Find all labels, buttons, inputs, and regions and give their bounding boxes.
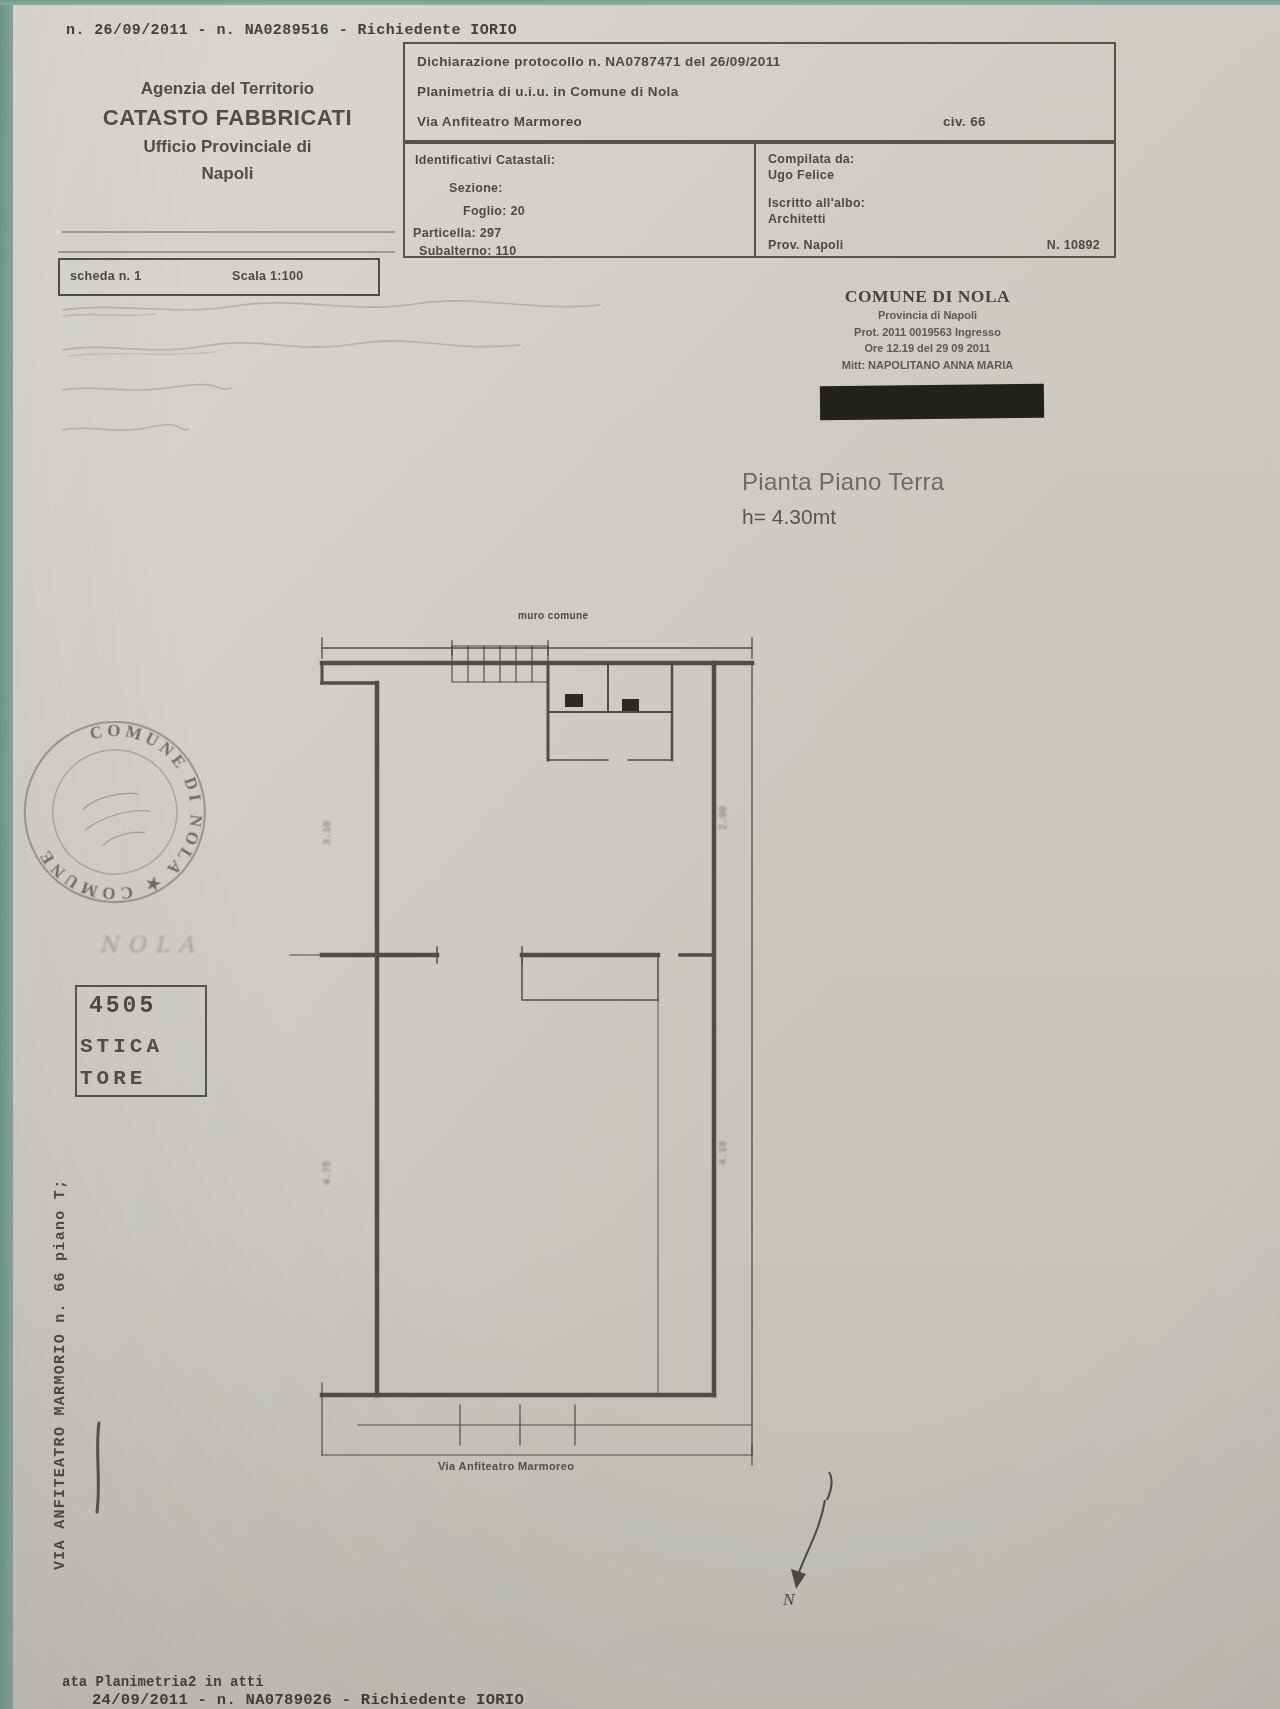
dim-left-bottom: 4.75 — [322, 1161, 333, 1185]
sheet-scale-bar: scheda n. 1 Scala 1:100 — [58, 258, 380, 296]
side-stamp-fragment1: STICA — [80, 1035, 163, 1058]
scale: Scala 1:100 — [232, 269, 303, 283]
faint-handwriting — [55, 292, 715, 452]
dim-right-top: 2.90 — [718, 806, 729, 830]
bottom-annotation-2: 24/09/2011 - n. NA0789026 - Richiedente … — [92, 1691, 524, 1709]
protocol-stamp-line5: Mitt: NAPOLITANO ANNA MARIA — [790, 357, 1065, 374]
compiler-box: Compilata da: Ugo Felice Iscritto all'al… — [754, 142, 1116, 258]
compiler-prov: Prov. Napoli — [768, 238, 844, 252]
plan-title: Pianta Piano Terra — [742, 468, 944, 496]
dim-left-top: 3.10 — [322, 821, 333, 845]
handwriting-marks: NOLA — [95, 918, 235, 978]
protocol-stamp-line2: Provincia di Napoli — [790, 307, 1065, 324]
agency-line1: Agenzia del Territorio — [60, 76, 395, 102]
scanner-edge-left — [0, 0, 13, 1709]
svg-text:COMUNE DI NOLA ★ COMUNE: COMUNE DI NOLA ★ COMUNE — [1, 697, 230, 927]
fixture-mark — [565, 694, 583, 707]
identifiers-title: Identificativi Catastali: — [415, 153, 555, 167]
side-stamp-number: 4505 — [89, 993, 156, 1019]
compiler-number: N. 10892 — [1047, 238, 1100, 252]
compiler-title: Compilata da: — [768, 152, 855, 166]
cadastral-identifiers-box: Identificativi Catastali: Sezione: Fogli… — [403, 142, 756, 258]
albo-value: Architetti — [768, 212, 826, 226]
redaction-bar — [820, 384, 1044, 420]
top-protocol-annotation: n. 26/09/2011 - n. NA0289516 - Richieden… — [66, 22, 517, 39]
bottom-annotation-1: ata Planimetria2 in atti — [62, 1674, 264, 1690]
round-stamp-text: COMUNE DI NOLA ★ COMUNE — [1, 697, 230, 927]
protocol-stamp-line4: Ore 12.19 del 29 09 2011 — [790, 340, 1065, 357]
north-arrow: N — [765, 1465, 865, 1610]
handwriting-text: NOLA — [99, 932, 203, 957]
fixture-mark — [622, 699, 639, 711]
compiler-name: Ugo Felice — [768, 168, 834, 182]
agency-line3: Ufficio Provinciale di — [60, 134, 395, 160]
declaration-box: Dichiarazione protocollo n. NA0787471 de… — [403, 42, 1116, 142]
divider — [58, 251, 395, 253]
sezione: Sezione: — [449, 181, 503, 195]
protocol-stamp-line3: Prot. 2011 0019563 Ingresso — [790, 324, 1065, 341]
albo-label: Iscritto all'albo: — [768, 196, 865, 210]
divider — [62, 231, 395, 233]
side-stamp-fragment2: TORE — [80, 1067, 146, 1090]
scanner-edge-top — [0, 0, 1280, 5]
particella: Particella: 297 — [413, 226, 502, 240]
declaration-civ: civ. 66 — [943, 114, 986, 129]
pen-stroke — [92, 1420, 108, 1515]
declaration-address: Via Anfiteatro Marmoreo — [417, 114, 582, 129]
margin-address-note: VIA ANFITEATRO MARMORIO n. 66 piano T; — [52, 1070, 69, 1570]
scanned-cadastral-document: n. 26/09/2011 - n. NA0289516 - Richieden… — [0, 0, 1280, 1709]
side-stamp-box: 4505 STICA TORE — [75, 985, 207, 1097]
agency-line2: CATASTO FABBRICATI — [60, 102, 395, 134]
plan-height-note: h= 4.30mt — [742, 505, 836, 529]
north-label: N — [782, 1590, 796, 1609]
north-arrow-head — [791, 1569, 806, 1589]
subalterno: Subalterno: 110 — [419, 244, 517, 258]
declaration-line2: Planimetria di u.i.u. in Comune di Nola — [417, 84, 679, 99]
round-stamp: COMUNE DI NOLA ★ COMUNE — [0, 675, 245, 951]
sheet-number: scheda n. 1 — [70, 269, 141, 283]
protocol-stamp-block: COMUNE DI NOLA Provincia di Napoli Prot.… — [790, 286, 1065, 373]
agency-line4: Napoli — [60, 161, 395, 187]
agency-header: Agenzia del Territorio CATASTO FABBRICAT… — [60, 76, 395, 187]
street-label: Via Anfiteatro Marmoreo — [438, 1460, 574, 1472]
dim-right-bottom: 4.10 — [718, 1141, 729, 1165]
floor-plan-drawing — [268, 596, 788, 1476]
foglio: Foglio: 20 — [463, 204, 525, 218]
protocol-stamp-title: COMUNE DI NOLA — [790, 286, 1065, 307]
declaration-line1: Dichiarazione protocollo n. NA0787471 de… — [417, 54, 781, 69]
